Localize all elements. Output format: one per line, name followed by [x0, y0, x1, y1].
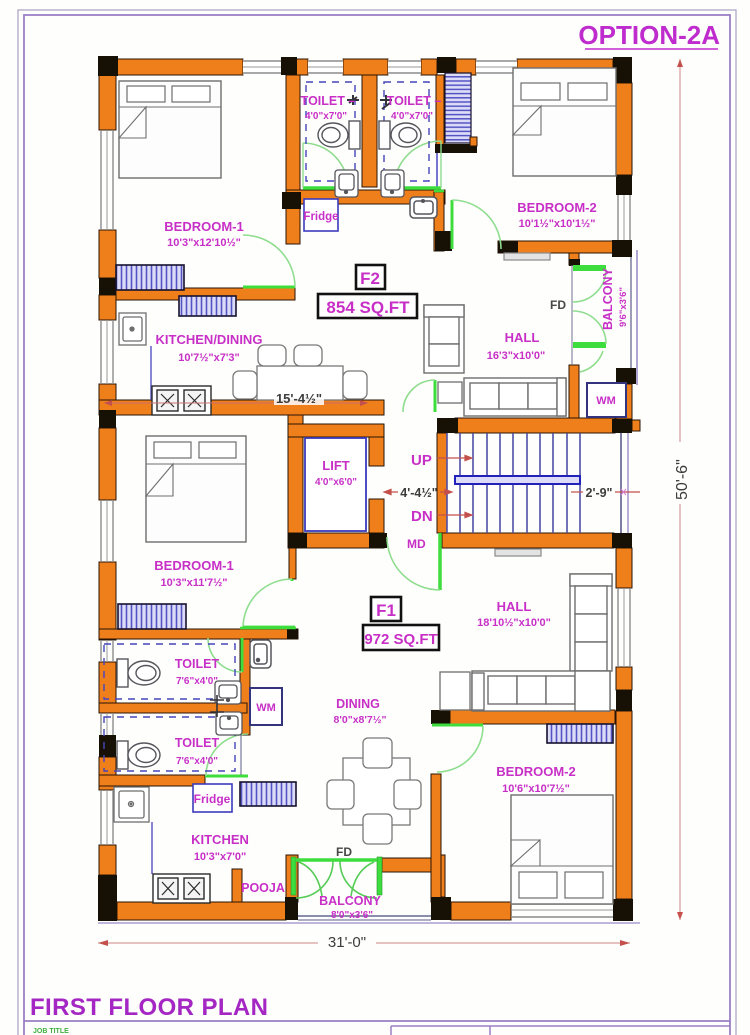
svg-text:WM: WM: [596, 395, 616, 407]
svg-text:JOB TITLE: JOB TITLE: [33, 1028, 69, 1035]
svg-text:4'0"x6'0": 4'0"x6'0": [315, 477, 357, 488]
svg-text:Fridge: Fridge: [194, 792, 231, 806]
svg-text:BEDROOM-2: BEDROOM-2: [517, 200, 596, 215]
svg-text:LIFT: LIFT: [322, 458, 349, 473]
svg-text:KITCHEN: KITCHEN: [191, 832, 249, 847]
svg-text:10'3"x12'10½": 10'3"x12'10½": [167, 237, 241, 249]
svg-text:16'3"x10'0": 16'3"x10'0": [487, 350, 546, 362]
svg-text:7'6"x4'0": 7'6"x4'0": [176, 676, 218, 687]
svg-text:Fridge: Fridge: [303, 211, 338, 223]
svg-text:WM: WM: [256, 702, 276, 714]
svg-text:10'1½"x10'1½": 10'1½"x10'1½": [519, 218, 596, 230]
svg-text:2'-9": 2'-9": [586, 486, 613, 500]
svg-text:9'6"x3'6": 9'6"x3'6": [618, 287, 629, 327]
svg-text:4'0"x7'0": 4'0"x7'0": [391, 111, 433, 122]
svg-text:10'6"x10'7½": 10'6"x10'7½": [502, 783, 570, 795]
svg-text:854 SQ.FT: 854 SQ.FT: [326, 298, 410, 317]
svg-text:10'3"x11'7½": 10'3"x11'7½": [160, 577, 227, 589]
svg-text:15'-4½": 15'-4½": [276, 391, 322, 406]
svg-text:FD: FD: [550, 298, 566, 312]
svg-text:UP: UP: [411, 452, 432, 469]
svg-text:10'3"x7'0": 10'3"x7'0": [194, 851, 246, 863]
svg-text:8'0"x8'7½": 8'0"x8'7½": [334, 714, 387, 726]
svg-text:HALL: HALL: [505, 330, 540, 345]
svg-text:4'0"x7'0": 4'0"x7'0": [305, 111, 347, 122]
svg-text:OPTION-2A: OPTION-2A: [578, 20, 720, 50]
svg-text:972 SQ.FT: 972 SQ.FT: [364, 631, 437, 648]
svg-text:8'0"x3'6": 8'0"x3'6": [331, 910, 373, 921]
svg-text:BEDROOM-1: BEDROOM-1: [164, 219, 243, 234]
svg-text:KITCHEN/DINING: KITCHEN/DINING: [156, 332, 263, 347]
svg-text:BALCONY: BALCONY: [601, 268, 615, 330]
svg-text:F2: F2: [360, 269, 380, 288]
svg-text:MD: MD: [407, 537, 426, 551]
svg-text:TOILET: TOILET: [175, 736, 220, 750]
svg-text:BALCONY: BALCONY: [319, 894, 381, 908]
svg-text:TOILET –: TOILET –: [301, 94, 356, 108]
svg-text:TOILET: TOILET: [175, 657, 220, 671]
svg-text:POOJA: POOJA: [241, 881, 285, 895]
svg-text:7'6"x4'0": 7'6"x4'0": [176, 756, 218, 767]
svg-text:DINING: DINING: [336, 697, 380, 711]
svg-text:10'7½"x7'3": 10'7½"x7'3": [178, 352, 240, 364]
svg-text:31'-0": 31'-0": [328, 934, 366, 951]
svg-text:FD: FD: [336, 845, 352, 859]
svg-text:4'-4½": 4'-4½": [400, 486, 437, 500]
svg-text:F1: F1: [376, 601, 396, 620]
svg-text:BEDROOM-1: BEDROOM-1: [154, 558, 233, 573]
svg-text:50'-6": 50'-6": [674, 459, 691, 500]
svg-text:FIRST FLOOR PLAN: FIRST FLOOR PLAN: [30, 994, 268, 1021]
svg-text:18'10½"x10'0": 18'10½"x10'0": [477, 617, 551, 629]
svg-text:BEDROOM-2: BEDROOM-2: [496, 764, 575, 779]
svg-text:HALL: HALL: [497, 599, 532, 614]
svg-text:DN: DN: [411, 508, 433, 525]
svg-text:TOILET –: TOILET –: [387, 94, 442, 108]
